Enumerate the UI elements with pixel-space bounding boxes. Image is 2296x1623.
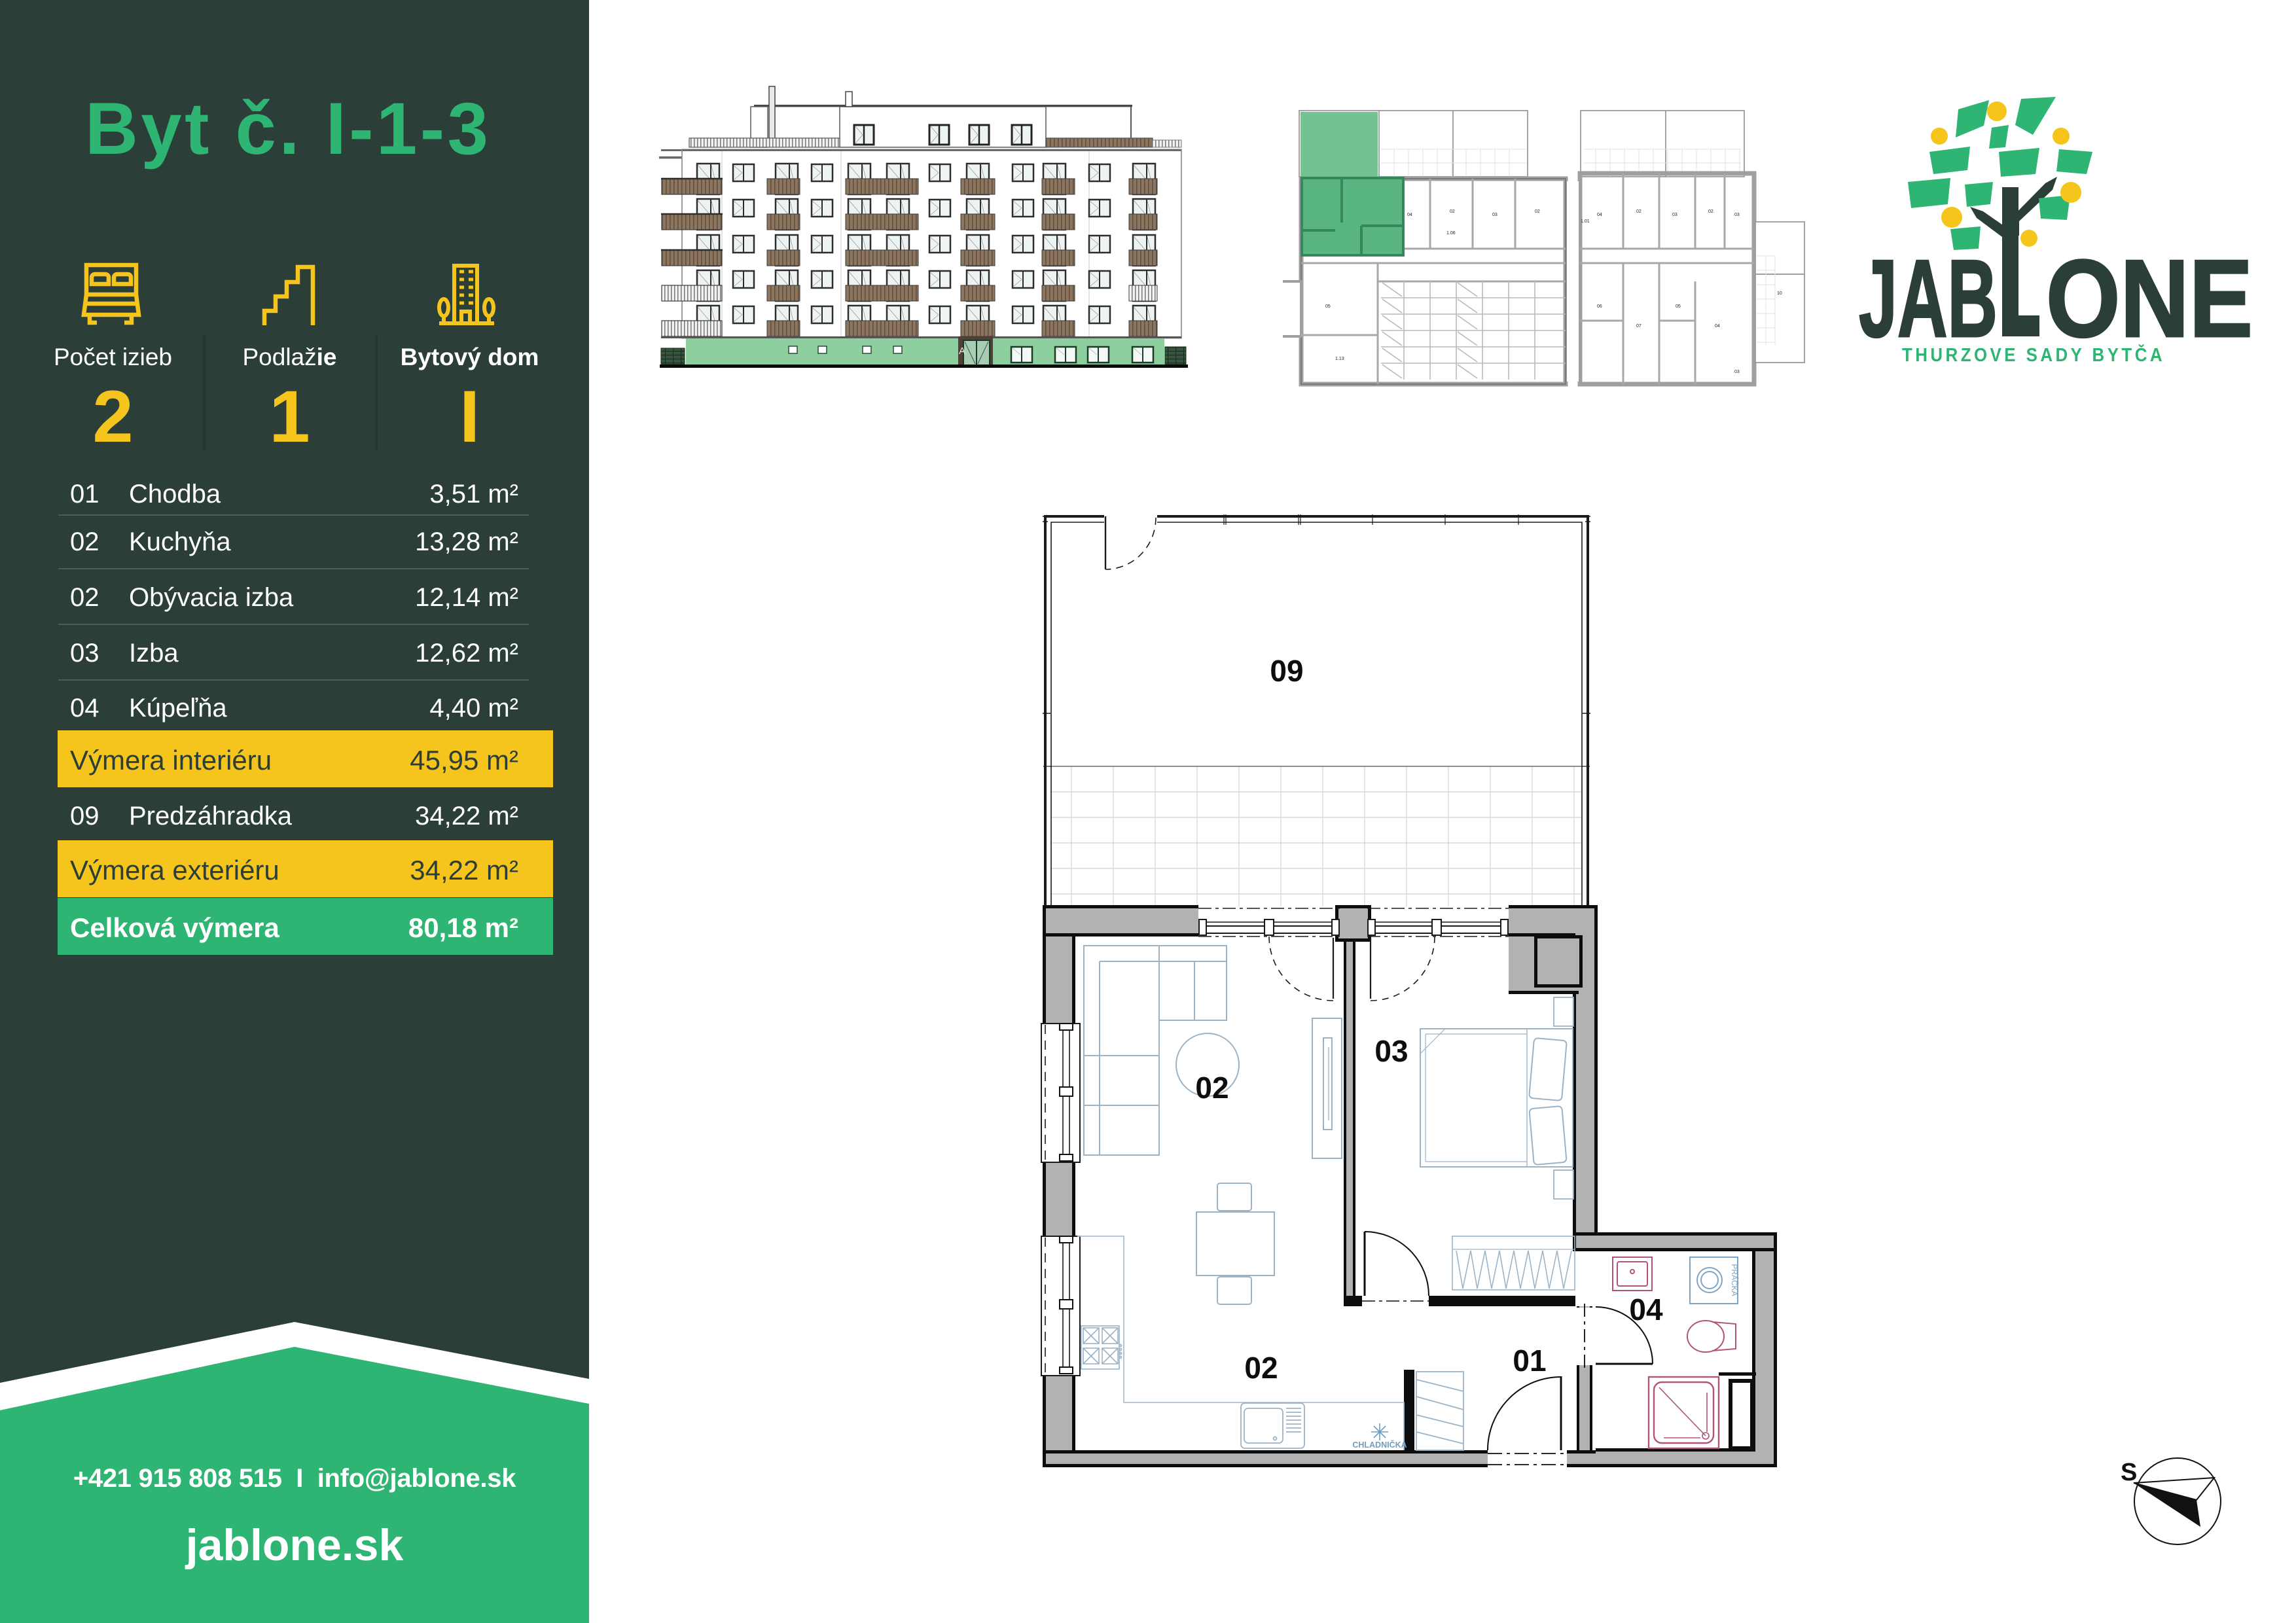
- svg-text:A: A: [959, 346, 965, 357]
- svg-text:07: 07: [1636, 324, 1641, 329]
- svg-text:02: 02: [1450, 209, 1455, 214]
- svg-text:CHLADNIČKA: CHLADNIČKA: [1352, 1440, 1407, 1450]
- svg-text:05: 05: [1676, 304, 1681, 309]
- svg-text:1.13: 1.13: [1335, 357, 1344, 361]
- svg-text:04: 04: [1629, 1293, 1663, 1327]
- svg-text:PRÁČKA: PRÁČKA: [1730, 1264, 1740, 1296]
- svg-text:02: 02: [1195, 1071, 1229, 1105]
- svg-text:JAB: JAB: [1859, 237, 1998, 360]
- svg-text:10: 10: [1777, 291, 1782, 296]
- svg-text:1.06: 1.06: [1446, 231, 1456, 236]
- svg-text:03: 03: [1734, 213, 1740, 217]
- svg-text:THURZOVE SADY BYTČA: THURZOVE SADY BYTČA: [1902, 344, 2165, 366]
- svg-text:1.01: 1.01: [1581, 219, 1590, 224]
- svg-text:09: 09: [1270, 654, 1303, 688]
- svg-text:02: 02: [1535, 209, 1540, 214]
- svg-text:03: 03: [1734, 370, 1740, 374]
- svg-text:S: S: [2121, 1459, 2137, 1486]
- svg-text:01: 01: [1513, 1344, 1546, 1378]
- svg-text:03: 03: [1492, 213, 1498, 217]
- svg-text:04: 04: [1715, 324, 1720, 329]
- svg-text:02: 02: [1636, 209, 1641, 214]
- svg-text:02: 02: [1244, 1351, 1278, 1385]
- svg-text:03: 03: [1374, 1034, 1408, 1068]
- svg-text:03: 03: [1672, 213, 1677, 217]
- svg-text:06: 06: [1597, 304, 1602, 309]
- svg-text:05: 05: [1325, 304, 1331, 309]
- svg-text:02: 02: [1708, 209, 1713, 214]
- svg-text:04: 04: [1407, 213, 1412, 217]
- svg-text:04: 04: [1597, 213, 1602, 217]
- svg-text:ONE: ONE: [2046, 237, 2253, 360]
